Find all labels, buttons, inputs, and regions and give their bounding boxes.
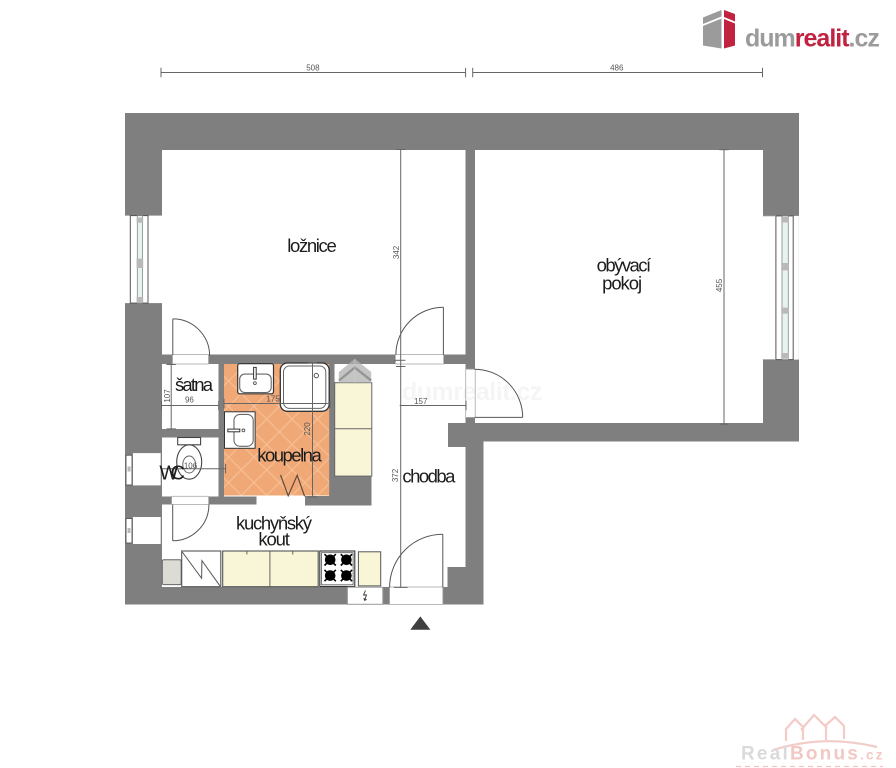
- svg-text:372: 372: [391, 468, 400, 482]
- svg-text:96: 96: [185, 395, 194, 404]
- svg-text:106: 106: [184, 461, 198, 470]
- svg-text:šatna: šatna: [175, 374, 214, 395]
- svg-text:220: 220: [303, 422, 312, 436]
- svg-text:dumrealit.cz: dumrealit.cz: [402, 378, 542, 406]
- svg-text:486: 486: [610, 63, 624, 72]
- svg-text:koupelna: koupelna: [257, 445, 322, 466]
- svg-text:RealBonus.cz: RealBonus.cz: [741, 744, 885, 765]
- svg-text:ložnice: ložnice: [287, 235, 337, 256]
- svg-text:dumrealit.cz: dumrealit.cz: [745, 25, 879, 53]
- svg-text:508: 508: [306, 63, 320, 72]
- svg-text:pokoj: pokoj: [602, 272, 642, 293]
- svg-text:175: 175: [266, 394, 280, 403]
- svg-text:342: 342: [392, 245, 401, 259]
- svg-text:455: 455: [715, 278, 724, 292]
- svg-text:WC: WC: [159, 463, 185, 485]
- svg-text:kout: kout: [258, 529, 290, 550]
- svg-text:chodba: chodba: [402, 466, 456, 487]
- svg-text:107: 107: [163, 389, 172, 403]
